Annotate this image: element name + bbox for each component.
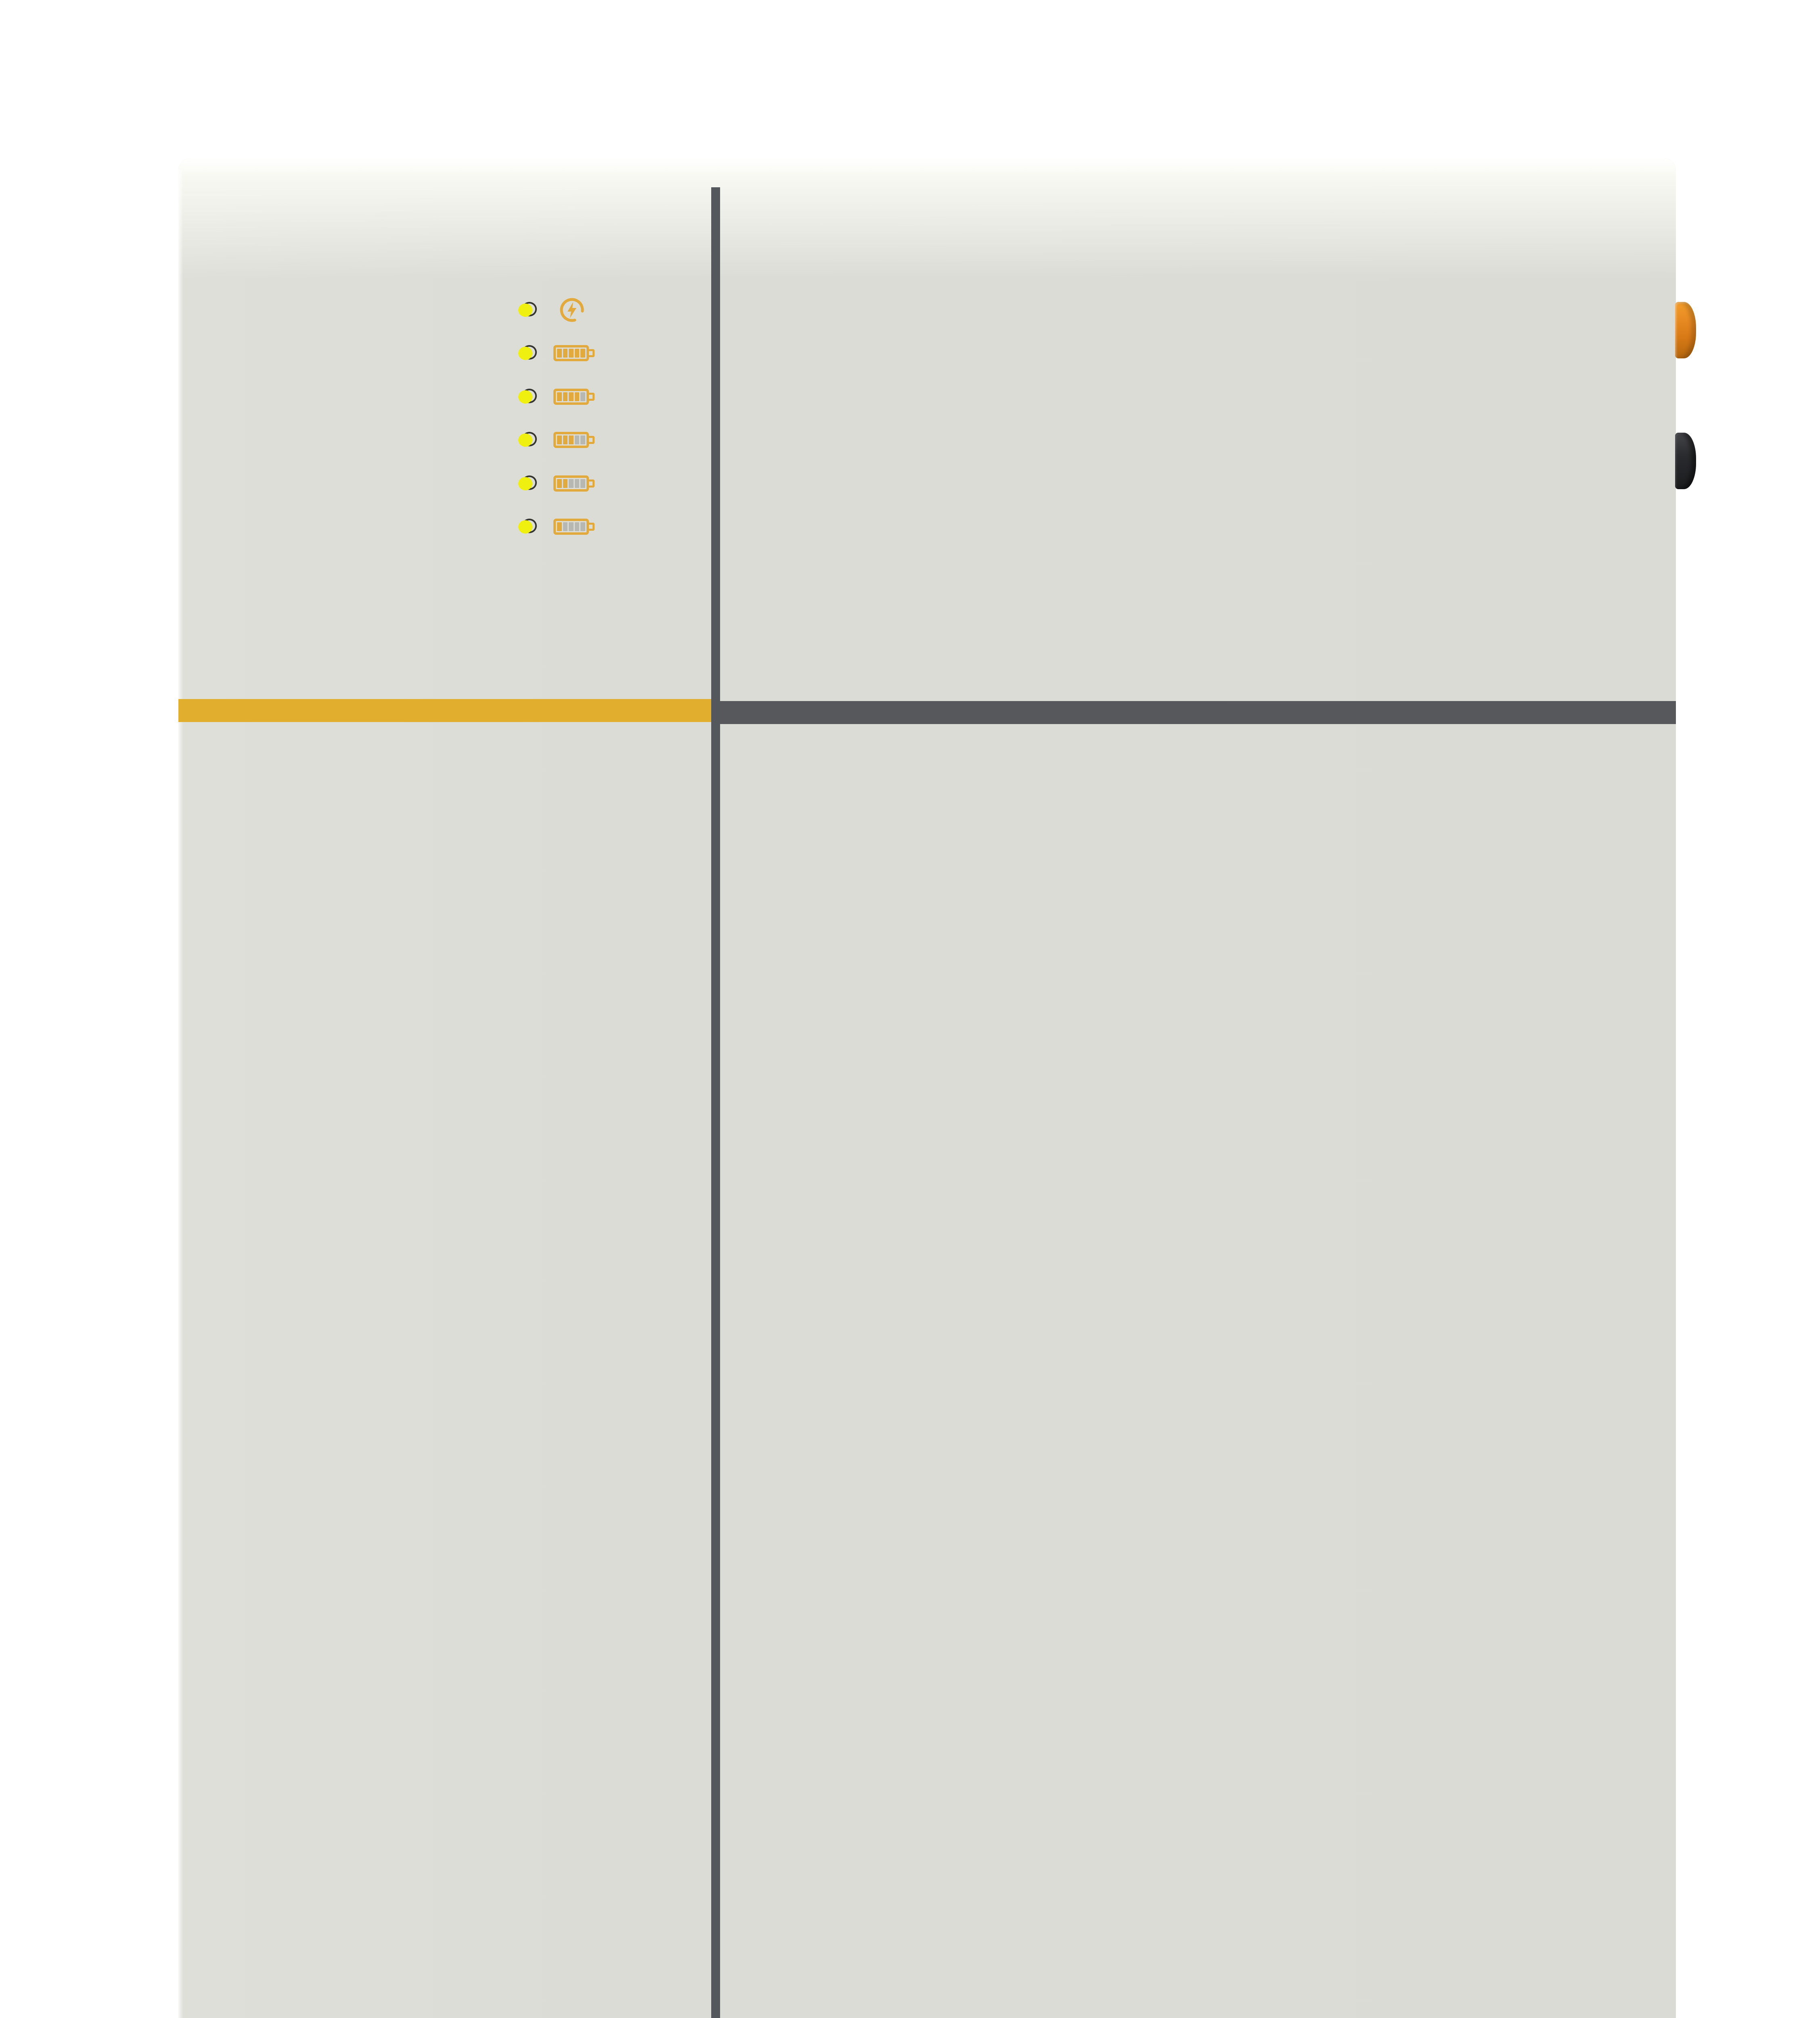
battery-segment [580,435,585,444]
battery-segment [580,522,585,531]
status-row-battery-2 [518,462,611,505]
status-row-battery-1 [518,505,611,549]
battery-body [553,475,589,492]
cabinet-left-edge-highlight [178,170,183,2018]
status-row-battery-4 [518,375,611,419]
led-dot [518,347,532,360]
status-row-battery-5 [518,332,611,375]
accent-stripe-dark [720,701,1676,724]
led-dot [518,433,532,447]
led-dot [518,520,532,534]
battery-segment [563,435,568,444]
power-charge-icon [559,297,585,323]
battery-segment [563,522,568,531]
led-indicator [518,475,537,492]
led-dot [518,390,532,404]
battery-body [553,389,589,405]
led-indicator [518,389,537,405]
battery-segment [569,479,574,488]
battery-terminal [588,436,595,444]
led-indicator [518,519,537,535]
orange-connector [1675,302,1696,358]
led-indicator [518,345,537,361]
battery-icon-level-1 [553,519,595,535]
black-knob [1675,433,1696,489]
product-photo-triple-power-battery: { "device": { "name": "Triple Power batt… [0,0,1820,2018]
cabinet-top-sheen [178,158,1676,279]
status-row-battery-3 [518,419,611,462]
battery-segment [557,522,562,531]
battery-body [553,345,589,361]
battery-segment [563,349,568,358]
battery-segment [569,349,574,358]
battery-segment [557,435,562,444]
battery-segment [580,392,585,401]
battery-segment [575,435,580,444]
battery-segment [575,392,580,401]
battery-segment [575,349,580,358]
battery-segment [563,392,568,401]
battery-icon-level-5 [553,345,595,361]
led-indicator [518,432,537,448]
battery-segment [569,522,574,531]
battery-segment [575,522,580,531]
battery-terminal [588,479,595,488]
battery-segment [569,392,574,401]
led-dot [518,304,532,317]
battery-body [553,432,589,448]
led-dot [518,477,532,490]
battery-segment [569,435,574,444]
battery-segment [575,479,580,488]
battery-terminal [588,393,595,401]
battery-segment [557,479,562,488]
accent-stripe-yellow [178,699,711,722]
led-indicator [518,302,537,318]
vertical-divider-line [711,187,720,2018]
battery-body [553,519,589,535]
battery-terminal [588,349,595,357]
status-row-charge [518,288,611,332]
battery-segment [557,349,562,358]
battery-icon-level-4 [553,389,595,405]
battery-segment [580,479,585,488]
battery-segment [580,349,585,358]
battery-segment [563,479,568,488]
status-panel [518,288,611,548]
device-cabinet [178,158,1676,2018]
battery-segment [557,392,562,401]
battery-icon-level-3 [553,432,595,448]
battery-terminal [588,523,595,531]
battery-icon-level-2 [553,475,595,492]
